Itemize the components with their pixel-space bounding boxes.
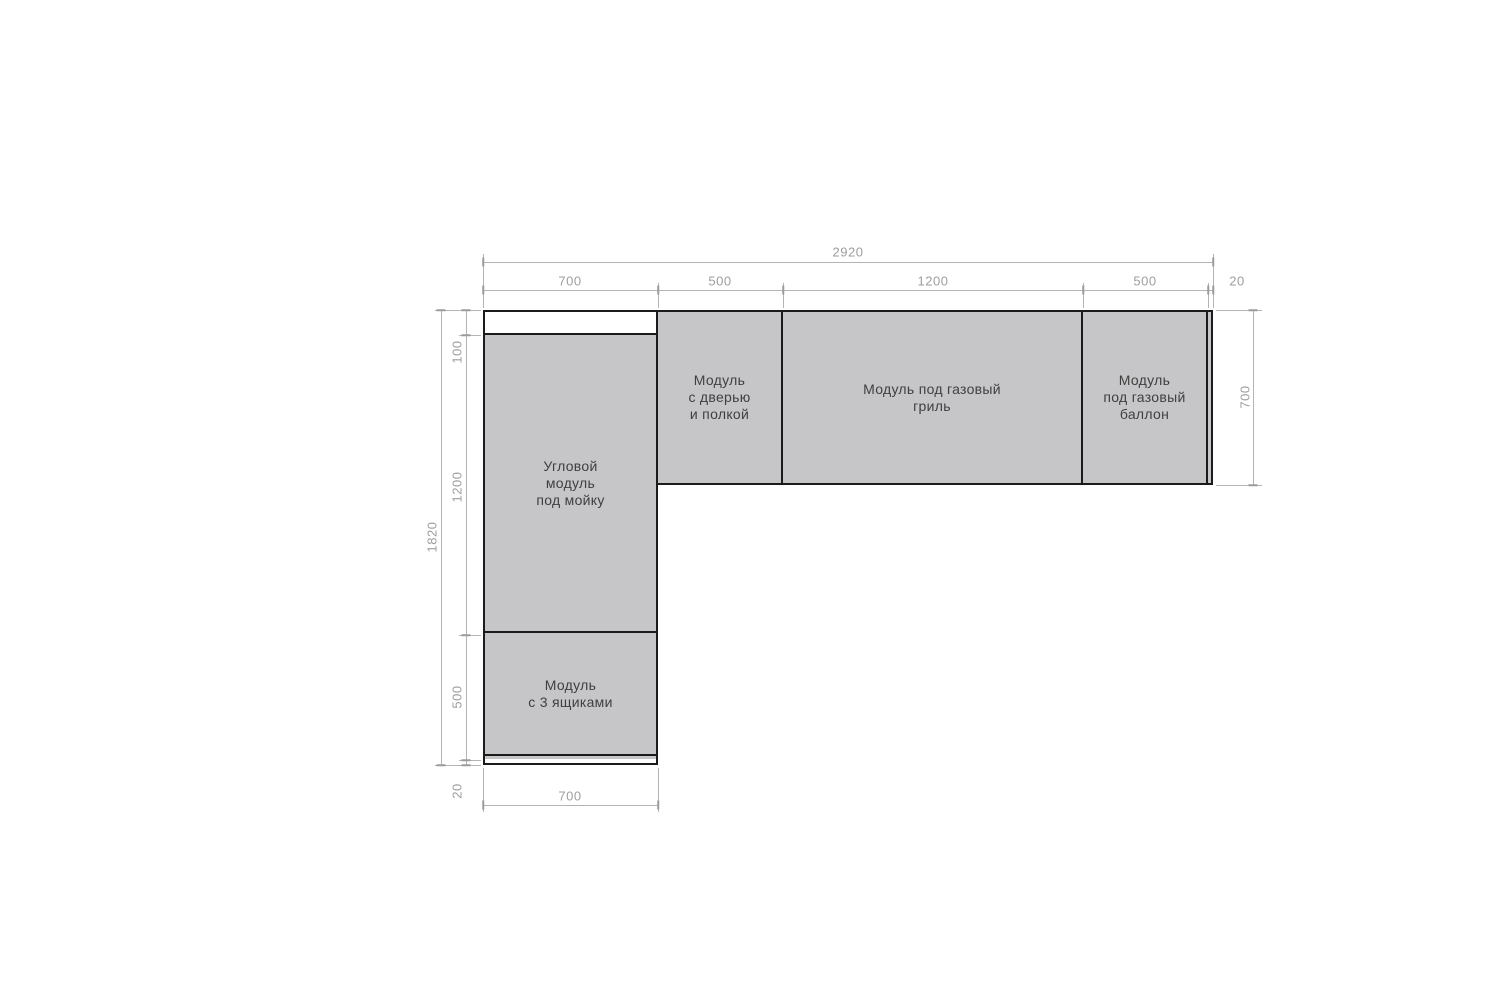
dim-label-bottom-700: 700 [558,789,581,804]
dimension-tick [1082,286,1084,295]
countertop-edge-strip-bottom [485,756,656,759]
module-gas-grill: Модуль под газовый гриль [781,312,1081,483]
module-door-shelf: Модуль с дверью и полкой [658,312,781,483]
dim-line-top-chain [483,290,1213,291]
dim-label-top-500-left: 500 [708,274,731,289]
module-corner-sink: Угловой модуль под мойку [485,335,656,633]
module-door-shelf-label: Модуль с дверью и полкой [688,372,750,423]
module-gas-grill-label: Модуль под газовый гриль [863,381,1001,415]
dim-label-left-20: 20 [450,783,465,798]
dim-label-top-total: 2920 [833,245,864,260]
plan-drawing: Угловой модуль под мойку Модуль с 3 ящик… [0,0,1500,1001]
dim-line-left-total [441,310,442,765]
dimension-tick [462,309,471,311]
dim-label-top-700: 700 [558,274,581,289]
top-module-row: Модуль с дверью и полкой Модуль под газо… [658,310,1213,485]
left-module-column: Угловой модуль под мойку Модуль с 3 ящик… [483,310,658,765]
dimension-tick [482,286,484,295]
dimension-tick [782,286,784,295]
dim-label-left-500: 500 [450,685,465,708]
module-gas-cylinder-label: Модуль под газовый баллон [1103,372,1185,423]
dim-line-left-chain [466,310,467,765]
module-corner-sink-label: Угловой модуль под мойку [536,458,604,509]
dimension-tick [1212,258,1214,267]
dimension-tick [482,801,484,810]
dim-line-top-total [483,262,1213,263]
module-3-drawers: Модуль с 3 ящиками [485,633,656,756]
dimension-tick [1212,286,1214,295]
dim-label-top-1200: 1200 [918,274,949,289]
dim-label-top-500-right: 500 [1133,274,1156,289]
corner-void-area [485,312,656,335]
dimension-tick [462,634,471,636]
dimension-tick [462,759,471,761]
countertop-edge-strip-right [1206,312,1211,483]
dim-line-right-side [1253,310,1254,485]
dimension-tick [1207,286,1209,295]
dimension-tick [482,258,484,267]
dim-label-right-700: 700 [1238,385,1253,408]
dim-label-left-1200: 1200 [450,472,465,503]
dimension-tick [437,764,446,766]
dimension-tick [657,801,659,810]
dim-label-top-20: 20 [1229,274,1244,289]
dimension-tick [462,764,471,766]
dimension-tick [657,286,659,295]
dimension-tick [437,309,446,311]
dimension-tick [1249,484,1258,486]
dimension-tick [1249,309,1258,311]
dim-label-left-100: 100 [450,340,465,363]
dim-line-bottom-width [483,805,658,806]
dimension-tick [462,334,471,336]
module-gas-cylinder: Модуль под газовый баллон [1081,312,1206,483]
module-3-drawers-label: Модуль с 3 ящиками [528,677,612,711]
dim-label-left-total: 1820 [425,522,440,553]
